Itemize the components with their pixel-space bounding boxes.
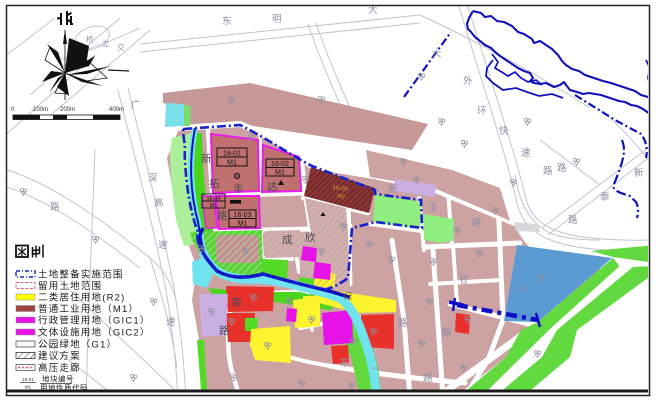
svg-text:16-04: 16-04 — [206, 196, 220, 202]
svg-text:M1: M1 — [25, 385, 32, 390]
svg-text:明: 明 — [272, 14, 282, 25]
svg-text:路: 路 — [520, 284, 527, 293]
svg-text:路: 路 — [217, 209, 228, 222]
svg-text:大: 大 — [432, 48, 442, 60]
svg-text:深: 深 — [148, 173, 158, 184]
svg-text:路: 路 — [219, 324, 230, 337]
svg-text:建议方案: 建议方案 — [38, 350, 81, 362]
svg-text:16-02: 16-02 — [271, 161, 289, 168]
svg-text:普通工业用地（M1）: 普通工业用地（M1） — [38, 303, 139, 315]
svg-text:外: 外 — [463, 75, 473, 87]
svg-text:达: 达 — [267, 181, 278, 193]
svg-text:路: 路 — [568, 214, 578, 226]
svg-text:成: 成 — [282, 234, 293, 246]
svg-text:东: 东 — [340, 357, 350, 369]
svg-text:桥: 桥 — [86, 34, 94, 44]
svg-text:路: 路 — [557, 162, 567, 174]
svg-text:文体设施用地（GIC2）: 文体设施用地（GIC2） — [38, 327, 151, 339]
svg-text:400m: 400m — [109, 107, 124, 113]
svg-text:M1: M1 — [210, 203, 218, 209]
svg-text:16-01: 16-01 — [223, 151, 241, 158]
svg-text:新: 新 — [388, 183, 398, 195]
svg-text:东: 东 — [222, 15, 232, 27]
svg-text:欣: 欣 — [305, 231, 316, 244]
svg-text:路: 路 — [423, 372, 433, 384]
svg-text:速: 速 — [166, 317, 176, 328]
svg-text:路: 路 — [472, 217, 482, 229]
svg-text:16-03: 16-03 — [234, 212, 252, 219]
svg-text:M1: M1 — [227, 160, 237, 167]
svg-text:行政管理用地（GIC1）: 行政管理用地（GIC1） — [38, 315, 151, 327]
svg-text:高: 高 — [154, 197, 164, 209]
svg-text:速: 速 — [158, 240, 168, 251]
svg-text:一: 一 — [370, 364, 380, 375]
svg-text:200m: 200m — [60, 107, 75, 113]
svg-text:路: 路 — [398, 317, 408, 329]
svg-text:广: 广 — [131, 99, 141, 111]
svg-text:荣: 荣 — [231, 297, 242, 309]
svg-text:地块编号: 地块编号 — [42, 374, 74, 384]
svg-text:土地整备实施范围: 土地整备实施范围 — [38, 269, 124, 281]
svg-text:M1: M1 — [275, 170, 285, 177]
svg-text:速: 速 — [521, 148, 531, 159]
svg-text:交: 交 — [117, 42, 125, 52]
svg-text:丰: 丰 — [233, 182, 244, 195]
svg-text:留用土地范围: 留用土地范围 — [38, 280, 102, 292]
svg-text:甘: 甘 — [459, 274, 469, 286]
svg-text:立: 立 — [102, 38, 110, 48]
svg-text:二类居住用地(R2): 二类居住用地(R2) — [38, 292, 125, 304]
svg-text:路: 路 — [442, 327, 452, 339]
svg-text:新: 新 — [201, 152, 212, 165]
svg-text:路: 路 — [543, 165, 553, 177]
svg-text:M1: M1 — [238, 221, 248, 228]
svg-text:100m: 100m — [33, 107, 48, 113]
svg-text:泰: 泰 — [600, 191, 610, 203]
svg-text:快: 快 — [499, 125, 509, 137]
svg-text:玉: 玉 — [428, 203, 438, 214]
svg-text:环: 环 — [477, 106, 487, 117]
svg-text:高压走廊: 高压走廊 — [38, 362, 81, 374]
svg-text:M1: M1 — [337, 193, 347, 200]
svg-text:新: 新 — [634, 167, 644, 179]
svg-text:公园绿地（G1）: 公园绿地（G1） — [38, 339, 117, 351]
svg-text:拓: 拓 — [209, 178, 220, 190]
svg-text:纪: 纪 — [344, 291, 352, 301]
svg-text:16-01: 16-01 — [22, 377, 34, 382]
svg-text:路: 路 — [50, 201, 60, 213]
